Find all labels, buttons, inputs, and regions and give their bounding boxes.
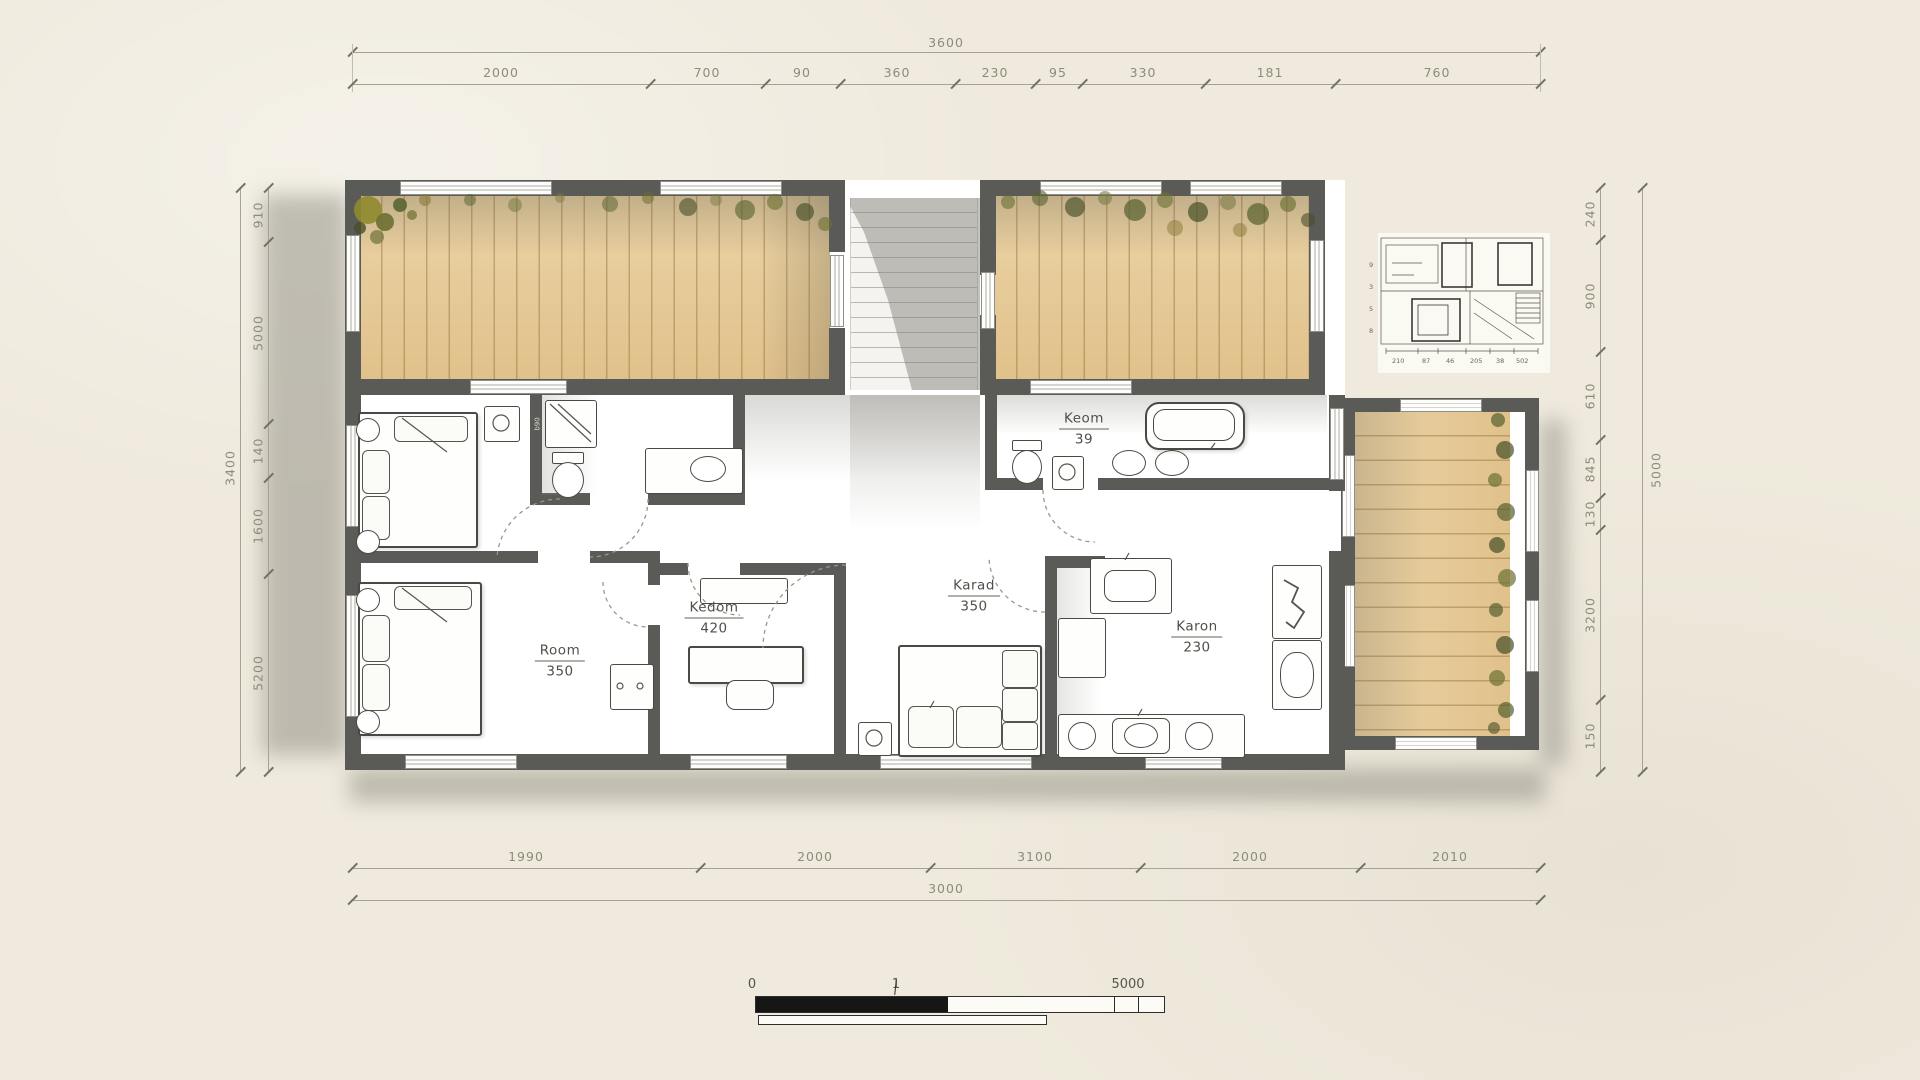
dim-line	[352, 900, 1540, 901]
wall	[345, 379, 845, 395]
inset-number: 3	[1369, 283, 1373, 291]
scale-bar-filled-segment	[756, 997, 948, 1012]
room-name: Karon	[1171, 619, 1222, 638]
basin	[1280, 652, 1314, 698]
wall	[1525, 398, 1539, 750]
dim-label: 240	[1583, 201, 1598, 228]
window	[1040, 181, 1162, 195]
nightstand-lamp	[356, 418, 380, 442]
window	[1030, 380, 1132, 394]
dim-label: 2000	[483, 65, 519, 80]
dim-label: 140	[251, 438, 266, 465]
dim-label: 3600	[928, 35, 964, 50]
dim-label: 150	[1583, 723, 1598, 750]
nightstand-lamp	[356, 530, 380, 554]
window	[405, 755, 517, 769]
dim-line	[352, 868, 1540, 869]
room-name: Keom	[1059, 411, 1109, 430]
dim-label: 610	[1583, 383, 1598, 410]
dim-label: 95	[1049, 65, 1067, 80]
dim-label: 181	[1257, 65, 1284, 80]
window	[470, 380, 567, 394]
wall	[829, 328, 845, 395]
sink	[1112, 450, 1146, 476]
toilet-bowl	[1012, 450, 1042, 484]
cushion	[1002, 722, 1038, 750]
scale-bar-end-label: 5000	[1111, 977, 1144, 992]
wall	[740, 563, 846, 575]
pillow	[362, 664, 390, 711]
kitchen-sink	[1124, 723, 1158, 748]
window	[690, 755, 787, 769]
room-label-kitchen: Karon 230	[1171, 619, 1222, 656]
inset-number: 502	[1516, 357, 1528, 365]
floor-plan-canvas: Room 350 Kedom 420 Karad 350 Karon 230 K…	[0, 0, 1920, 1080]
terrace-deck-top-right	[995, 195, 1310, 380]
room-label-study: Kedom 420	[685, 600, 744, 637]
washer	[1052, 456, 1084, 490]
kitchen-cabinet	[1058, 618, 1106, 678]
scale-bar-tick	[1114, 997, 1115, 1012]
inset-number: 9	[1369, 261, 1373, 269]
pillow	[908, 706, 954, 748]
room-area: 350	[535, 662, 585, 680]
dim-line	[268, 188, 269, 772]
building-shadow-left	[262, 195, 348, 755]
building-shadow-bottom	[350, 768, 1545, 802]
wall	[1329, 551, 1345, 770]
dim-label: 1600	[251, 508, 266, 544]
inset-number: 205	[1470, 357, 1482, 365]
sink	[1155, 450, 1189, 476]
wall-tag: b90	[534, 417, 542, 430]
dim-line	[352, 52, 1540, 53]
dim-label: 330	[1130, 65, 1157, 80]
window	[1526, 470, 1539, 552]
window	[660, 181, 782, 195]
window	[1310, 240, 1324, 332]
cushion	[1002, 650, 1038, 688]
pillow	[394, 416, 468, 442]
wall	[590, 551, 660, 563]
burner	[1185, 722, 1213, 750]
dim-label: 90	[793, 65, 811, 80]
scale-bar-secondary	[758, 1015, 1047, 1025]
inset-number: 210	[1392, 357, 1404, 365]
dim-label: 5000	[1649, 452, 1664, 488]
wall	[834, 563, 846, 770]
wall	[648, 493, 745, 505]
dim-label: 2000	[797, 849, 833, 864]
cushion	[1002, 688, 1038, 722]
building-shadow-right	[1540, 420, 1566, 765]
dim-label: 3100	[1017, 849, 1053, 864]
dim-label: 760	[1424, 65, 1451, 80]
window	[880, 755, 1032, 769]
scale-bar-tick	[1138, 997, 1139, 1012]
bathtub-basin	[1153, 409, 1235, 441]
sink	[690, 456, 726, 482]
room-name: Kedom	[685, 600, 744, 619]
inset-number: 87	[1422, 357, 1430, 365]
key-plan-drawing	[1378, 233, 1550, 373]
dim-label: 910	[251, 202, 266, 229]
window	[346, 235, 360, 332]
wall	[1098, 478, 1329, 490]
room-name: Room	[535, 643, 585, 662]
dim-label: 2000	[1232, 849, 1268, 864]
wall	[985, 395, 997, 490]
dim-label: 230	[982, 65, 1009, 80]
terrace-deck-top-left	[360, 195, 830, 380]
dim-line	[240, 188, 241, 772]
dim-line	[352, 84, 1540, 85]
window	[1400, 399, 1482, 412]
dim-line	[1642, 188, 1643, 772]
scale-bar-start-label: 0	[748, 977, 756, 992]
dim-line	[1600, 188, 1601, 772]
inset-number: 5	[1369, 305, 1373, 313]
wall	[358, 551, 538, 563]
dim-label: 130	[1583, 501, 1598, 528]
window	[830, 255, 844, 327]
dim-label: 5000	[251, 315, 266, 351]
wall	[1045, 556, 1057, 754]
kitchen-sink	[1104, 570, 1156, 602]
window	[1526, 600, 1539, 672]
window	[981, 272, 995, 329]
room-label-bathroom: Keom 39	[1059, 411, 1109, 448]
room-label-living: Karad 350	[948, 578, 1000, 615]
dresser	[610, 664, 654, 710]
dim-label: 900	[1583, 283, 1598, 310]
window	[400, 181, 552, 195]
pillow	[362, 450, 390, 494]
room-area: 350	[948, 597, 1000, 615]
inset-number: 38	[1496, 357, 1504, 365]
dim-label: 845	[1583, 456, 1598, 483]
room-label-bedroom: Room 350	[535, 643, 585, 680]
dim-label: 3000	[928, 881, 964, 896]
scale-bar	[755, 996, 1165, 1013]
plant-pot	[484, 406, 520, 442]
nightstand-lamp	[356, 588, 380, 612]
fridge	[1272, 565, 1322, 639]
window	[1395, 737, 1477, 750]
dim-label: 3200	[1583, 597, 1598, 633]
plant-pot	[858, 722, 892, 756]
inset-number: 46	[1446, 357, 1454, 365]
burner	[1068, 722, 1096, 750]
entry-stairs	[850, 198, 978, 390]
pillow	[956, 706, 1002, 748]
shower	[545, 400, 597, 448]
desk	[688, 646, 804, 684]
dim-label: 1990	[508, 849, 544, 864]
nightstand-lamp	[356, 710, 380, 734]
wall	[530, 395, 542, 505]
key-plan-inset: 210 87 46 205 38 502 9 3 5 8	[1378, 233, 1550, 373]
inset-number: 8	[1369, 327, 1373, 335]
toilet-bowl	[552, 462, 584, 498]
chair	[726, 680, 774, 710]
pillow	[394, 586, 472, 610]
dim-label: 700	[694, 65, 721, 80]
wall	[652, 563, 688, 575]
pillow	[362, 615, 390, 662]
dim-label: 5200	[251, 655, 266, 691]
dim-label: 2010	[1432, 849, 1468, 864]
dim-label: 360	[884, 65, 911, 80]
terrace-deck-right	[1355, 412, 1510, 736]
room-name: Karad	[948, 578, 1000, 597]
room-area: 230	[1171, 638, 1222, 656]
window	[1190, 181, 1282, 195]
room-area: 420	[685, 619, 744, 637]
wall	[829, 180, 845, 252]
room-area: 39	[1059, 430, 1109, 448]
window	[1330, 408, 1344, 480]
dim-label: 3400	[223, 450, 238, 486]
wall	[980, 180, 996, 275]
